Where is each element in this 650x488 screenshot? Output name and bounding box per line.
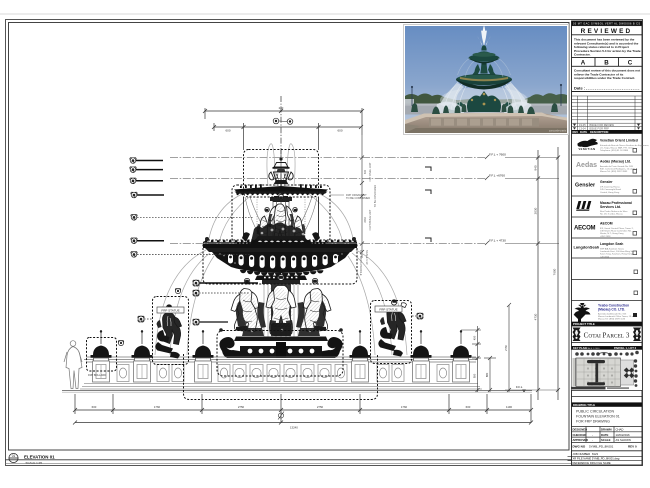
svg-text:VENETIAN: VENETIAN xyxy=(578,147,595,151)
svg-text:DESIGNED: DESIGNED xyxy=(573,428,588,432)
svg-text:F.F.L: F.F.L xyxy=(516,385,523,389)
svg-text:REV: REV xyxy=(573,130,579,134)
svg-text:Shatin, N.T., Hong Kong: Shatin, N.T., Hong Kong xyxy=(600,232,624,235)
svg-text:FRP BOLLARD: FRP BOLLARD xyxy=(88,373,106,377)
svg-text:Services Ltd.: Services Ltd. xyxy=(600,205,621,209)
svg-text:Rua Pedro Nolasco da Silva: Rua Pedro Nolasco da Silva xyxy=(600,210,628,213)
svg-text:CHAD: CHAD xyxy=(616,428,624,432)
svg-text:s/n, Taipa, Macau SAR, P.R. Ch: s/n, Taipa, Macau SAR, P.R. China xyxy=(600,147,635,150)
svg-text:TO BE CONFIRMED: TO BE CONFIRMED xyxy=(346,196,370,200)
svg-text:7600: 7600 xyxy=(553,268,557,275)
svg-text:2750: 2750 xyxy=(238,405,245,409)
svg-text:-: - xyxy=(592,433,593,437)
svg-text:F.F.L +6760: F.F.L +6760 xyxy=(489,174,505,178)
svg-text:Date :: Date : xyxy=(574,86,585,91)
svg-text:8/F, Grand Central Plaza, Towe: 8/F, Grand Central Plaza, Tower 2, xyxy=(600,227,634,230)
svg-text:APPROVED: APPROVED xyxy=(573,438,589,442)
svg-text:1760: 1760 xyxy=(401,405,408,409)
svg-text:SCALE: SCALE xyxy=(601,438,611,442)
svg-text:AECOM: AECOM xyxy=(574,226,596,232)
svg-text:Aedas (Macau) Ltd.: Aedas (Macau) Ltd. xyxy=(600,160,631,164)
svg-text:LangdonSeah: LangdonSeah xyxy=(574,245,600,250)
svg-text:PUBLIC CIRCULATION: PUBLIC CIRCULATION xyxy=(576,410,614,414)
svg-text:2030: 2030 xyxy=(364,217,367,223)
svg-text:Gensler: Gensler xyxy=(600,180,613,184)
svg-text:F.F.L + 7600: F.F.L + 7600 xyxy=(489,153,506,157)
svg-text:4730: 4730 xyxy=(534,313,538,320)
svg-text:Macau Tel: (853) 2878 1133: Macau Tel: (853) 2878 1133 xyxy=(598,319,626,321)
svg-text:A: A xyxy=(581,59,586,66)
svg-text:FOUNTAIN ELEVATION 01: FOUNTAIN ELEVATION 01 xyxy=(576,415,620,419)
svg-text:138 Shatin Rural Committee Rd,: 138 Shatin Rural Committee Rd, xyxy=(600,230,632,233)
svg-text:FRP STATUE UNIT: FRP STATUE UNIT xyxy=(369,209,372,230)
svg-text:600: 600 xyxy=(466,405,471,409)
svg-text:19-05: 19-05 xyxy=(579,123,586,127)
svg-text:t 28 0925: t 28 0925 xyxy=(600,255,610,258)
svg-text:38/F AIA Kowloon Tower,: 38/F AIA Kowloon Tower, xyxy=(600,248,625,251)
svg-text:145 Connaught Road: 145 Connaught Road xyxy=(600,188,622,191)
svg-text:SCALE 1:2000: SCALE 1:2000 xyxy=(585,347,600,350)
svg-text:Langdon Seah: Langdon Seah xyxy=(600,242,623,246)
svg-text:Venetian Orient Limited: Venetian Orient Limited xyxy=(600,139,638,143)
svg-text:5YMB_PD_8K001: 5YMB_PD_8K001 xyxy=(589,445,614,449)
svg-text:FRP STATUE: FRP STATUE xyxy=(161,308,179,312)
svg-text:Avenida da Amizade No. 555: Avenida da Amizade No. 555 xyxy=(598,313,627,316)
svg-text:PARCEL 1, LOT 2: PARCEL 1, LOT 2 xyxy=(614,346,637,350)
svg-text:Edif. Comercial Rodrigues, 12: Edif. Comercial Rodrigues, 12 andar A xyxy=(600,168,638,171)
svg-text:REV 0: REV 0 xyxy=(628,445,637,449)
svg-text:JOB NUMBER: JOB NUMBER xyxy=(573,452,591,456)
svg-text:13/04/2016: 13/04/2016 xyxy=(616,433,630,437)
svg-text:1190: 1190 xyxy=(506,405,512,409)
svg-text:13-04: 13-04 xyxy=(579,126,586,130)
svg-text:880: 880 xyxy=(485,372,489,377)
svg-text:DRAWN: DRAWN xyxy=(601,428,612,432)
svg-text:CHECKED: CHECKED xyxy=(573,433,587,437)
svg-text:1760: 1760 xyxy=(154,405,161,409)
svg-text:2750: 2750 xyxy=(317,405,324,409)
svg-text:REFERENCE DRG FILE NAME: REFERENCE DRG FILE NAME xyxy=(573,461,611,465)
svg-text:FRP BASIN PROFILE: FRP BASIN PROFILE xyxy=(359,250,363,276)
svg-text:13240: 13240 xyxy=(290,426,298,430)
svg-text:SCALE 1:10: SCALE 1:10 xyxy=(365,250,369,265)
svg-text:Landmark East, 100 How Ming St: Landmark East, 100 How Ming St, xyxy=(600,250,634,253)
svg-text:DATE: DATE xyxy=(580,130,587,134)
svg-text:DATE: DATE xyxy=(601,433,609,437)
svg-text:XR FILE NAME 5YMB_PD_8K001.dw: XR FILE NAME 5YMB_PD_8K001.dwg xyxy=(573,457,620,461)
svg-text:950: 950 xyxy=(473,373,477,378)
svg-text:REVIEWED: REVIEWED xyxy=(581,28,633,35)
svg-text:concorde-paris: concorde-paris xyxy=(549,129,567,133)
svg-text:F.F.L + 4730: F.F.L + 4730 xyxy=(489,239,506,243)
svg-text:No. 28, 3 andar, Macau: No. 28, 3 andar, Macau xyxy=(600,213,624,216)
svg-text:SCALE 1:25: SCALE 1:25 xyxy=(26,461,43,465)
svg-text:450: 450 xyxy=(473,335,477,340)
svg-text:2750: 2750 xyxy=(504,345,508,351)
svg-text:Telephone: (853) 81 18 2888: Telephone: (853) 81 18 2888 xyxy=(600,150,629,152)
svg-text:(Macau) CO. LTD.: (Macau) CO. LTD. xyxy=(598,308,625,312)
svg-text:t 852 2828: t 852 2828 xyxy=(600,235,611,238)
svg-text:DWG NO: DWG NO xyxy=(573,445,586,449)
svg-text:Aedas: Aedas xyxy=(576,162,597,169)
svg-text:-: - xyxy=(592,438,593,442)
svg-text:600: 600 xyxy=(92,405,97,409)
svg-text:FRP FINIAL UNIT: FRP FINIAL UNIT xyxy=(369,162,372,182)
svg-text:C: C xyxy=(628,59,633,66)
svg-text:AECOM: AECOM xyxy=(600,222,613,226)
svg-text:ISSUE FOR REVIEW: ISSUE FOR REVIEW xyxy=(589,123,614,127)
svg-text:AS SHOWN: AS SHOWN xyxy=(616,438,631,442)
svg-text:DESCRIPTION: DESCRIPTION xyxy=(590,130,608,134)
svg-text:01: 01 xyxy=(12,454,16,458)
svg-text:Macau Landmark Office Tower, 1: Macau Landmark Office Tower, 13 andar xyxy=(598,315,638,318)
svg-text:Avenida da Praia Grande No. 59: Avenida da Praia Grande No. 599 xyxy=(600,165,634,168)
svg-text:ISSUE FOR FRP: ISSUE FOR FRP xyxy=(589,126,609,130)
svg-text:2030: 2030 xyxy=(534,207,538,214)
svg-text:B: B xyxy=(604,59,609,66)
svg-text:600: 600 xyxy=(337,129,342,133)
svg-text:COTAI PARCEL 3: COTAI PARCEL 3 xyxy=(584,332,630,340)
svg-text:responsibilities under the Tra: responsibilities under the Trade Contrac… xyxy=(574,76,635,80)
svg-text:FOR FRP DRAWING: FOR FRP DRAWING xyxy=(576,420,610,424)
svg-text:03 MT GAC SYMBOL VERT AL DWG00: 03 MT GAC SYMBOL VERT AL DWG006 B CS xyxy=(573,23,640,26)
svg-text:840: 840 xyxy=(534,165,538,170)
svg-text:DRAWING TITLE: DRAWING TITLE xyxy=(573,403,595,407)
svg-text:Gensler: Gensler xyxy=(575,183,596,189)
svg-text:ELEVATION 01: ELEVATION 01 xyxy=(24,454,55,459)
svg-text:8123: 8123 xyxy=(592,452,598,456)
svg-text:600: 600 xyxy=(225,129,230,133)
svg-text:840: 840 xyxy=(364,169,367,174)
svg-text:TO BE CONFIRMED: TO BE CONFIRMED xyxy=(374,185,377,208)
svg-text:Contractor.: Contractor. xyxy=(574,53,591,57)
svg-text:Central, Hong Kong: Central, Hong Kong xyxy=(600,191,620,194)
svg-text:Estrada da Baia de Nossa Senho: Estrada da Baia de Nossa Senhora da Espe… xyxy=(600,144,649,147)
svg-text:Macau Tel: (853) 2837 2883: Macau Tel: (853) 2837 2883 xyxy=(600,171,628,173)
svg-text:FRP STATUE: FRP STATUE xyxy=(379,307,397,311)
